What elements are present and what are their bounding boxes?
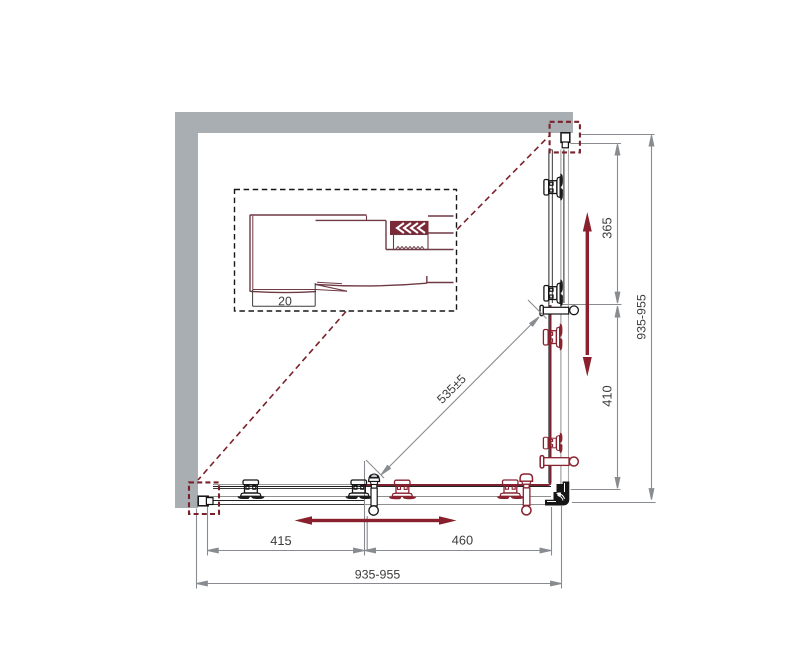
- svg-text:460: 460: [452, 532, 473, 547]
- svg-text:20: 20: [278, 294, 292, 308]
- svg-text:365: 365: [600, 217, 615, 238]
- svg-text:415: 415: [270, 533, 291, 548]
- svg-text:410: 410: [600, 385, 615, 406]
- svg-text:935-955: 935-955: [355, 567, 401, 581]
- svg-text:935-955: 935-955: [635, 294, 649, 340]
